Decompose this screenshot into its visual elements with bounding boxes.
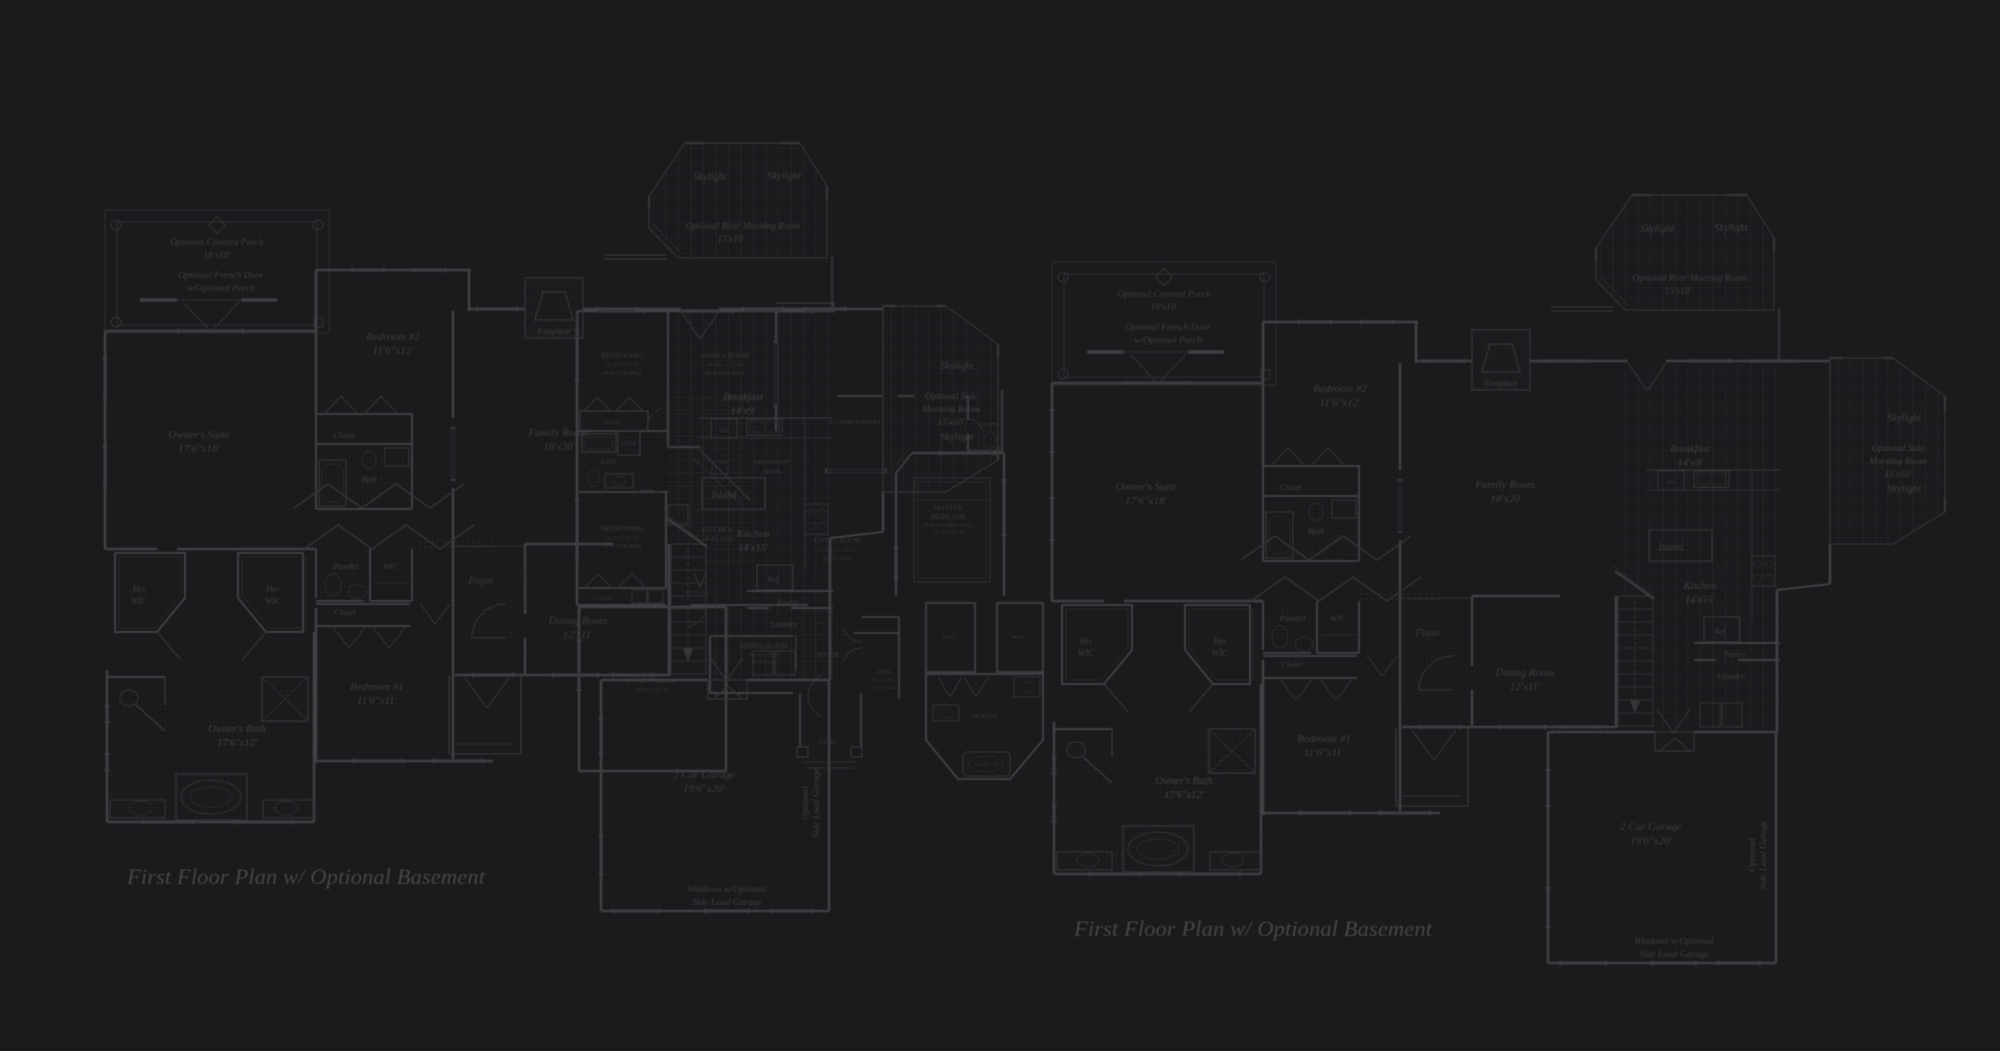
svg-text:11'-1" x 11'-2": 11'-1" x 11'-2" — [605, 536, 640, 542]
svg-text:Family Room: Family Room — [1474, 479, 1535, 491]
svg-text:Skylight: Skylight — [1640, 224, 1675, 235]
svg-text:W.I.C.: W.I.C. — [1012, 635, 1028, 641]
svg-text:w/Optional Porch: w/Optional Porch — [1134, 336, 1202, 346]
svg-text:Pantry: Pantry — [1723, 650, 1746, 659]
svg-text:LINEN: LINEN — [622, 442, 637, 447]
svg-text:15'x10': 15'x10' — [1884, 470, 1912, 480]
svg-text:12'x11': 12'x11' — [1510, 681, 1541, 693]
svg-text:MASTER: MASTER — [934, 504, 963, 512]
svg-text:WIC: WIC — [1212, 648, 1229, 658]
svg-text:Bath: Bath — [1308, 526, 1324, 536]
svg-text:Bedroom #1: Bedroom #1 — [1297, 733, 1351, 745]
svg-text:BEDROOM: BEDROOM — [930, 513, 966, 521]
svg-text:18'x20: 18'x20 — [1490, 493, 1520, 505]
svg-text:19'-8" x 20'-0": 19'-8" x 20'-0" — [634, 688, 670, 694]
svg-text:Closet: Closet — [1280, 482, 1302, 492]
svg-text:Optional Covered Porch: Optional Covered Porch — [1117, 290, 1210, 300]
svg-text:Windows w/Optional: Windows w/Optional — [1634, 937, 1714, 947]
svg-text:Skylight: Skylight — [1887, 484, 1922, 495]
svg-text:Island: Island — [1658, 542, 1685, 553]
svg-text:Optional: Optional — [1748, 838, 1758, 872]
svg-text:WIC: WIC — [1078, 648, 1095, 658]
svg-text:M.BATH: M.BATH — [973, 713, 998, 720]
svg-text:Skylight: Skylight — [1887, 413, 1922, 424]
svg-text:Morning Room: Morning Room — [1868, 457, 1927, 467]
svg-text:GARDEN TUB: GARDEN TUB — [974, 763, 999, 767]
svg-text:19'6"x20': 19'6"x20' — [1630, 835, 1672, 847]
svg-text:CLOSET: CLOSET — [603, 420, 624, 426]
svg-text:Bedroom #2: Bedroom #2 — [1313, 383, 1367, 395]
svg-text:11'6"x12': 11'6"x12' — [1320, 397, 1362, 409]
svg-text:2 Car Garage: 2 Car Garage — [1620, 821, 1682, 833]
svg-text:Her: Her — [1212, 636, 1227, 646]
svg-text:Fireplace: Fireplace — [1484, 378, 1518, 388]
svg-text:CLOSET: CLOSET — [594, 596, 615, 602]
svg-text:BATH: BATH — [600, 460, 616, 466]
svg-text:14'x9': 14'x9' — [1678, 458, 1704, 469]
svg-text:His: His — [1079, 636, 1093, 646]
svg-text:11'-5" x 13'-0": 11'-5" x 13'-0" — [605, 363, 640, 369]
svg-text:17'6"x18': 17'6"x18' — [1125, 495, 1167, 507]
svg-text:11'6"x11': 11'6"x11' — [1304, 747, 1345, 759]
svg-text:BEDROOM#3: BEDROOM#3 — [601, 352, 644, 360]
svg-text:Laundry: Laundry — [1716, 672, 1745, 681]
svg-text:COVERED PATIO: COVERED PATIO — [830, 419, 880, 426]
svg-text:BEDROOM#4: BEDROOM#4 — [601, 525, 644, 533]
svg-text:Ref.: Ref. — [1714, 627, 1728, 636]
svg-text:(9'-0/11'-0 BED CLG): (9'-0/11'-0 BED CLG) — [923, 522, 972, 529]
svg-text:DW: DW — [1665, 479, 1677, 486]
svg-text:DEN: DEN — [877, 669, 891, 676]
svg-text:First Floor Plan w/ Optional: First Floor Plan w/ Optional Basement — [1073, 916, 1433, 941]
svg-text:Powder: Powder — [1279, 613, 1307, 623]
svg-text:Owner's Suite: Owner's Suite — [1115, 481, 1176, 493]
svg-text:Skylight: Skylight — [1714, 223, 1749, 234]
svg-text:Optional Side: Optional Side — [1872, 444, 1925, 454]
svg-text:18'x10': 18'x10' — [1150, 303, 1178, 313]
svg-text:(9'-0 CLG): (9'-0 CLG) — [872, 684, 897, 691]
svg-text:15'x10': 15'x10' — [1664, 287, 1692, 297]
svg-text:Closet: Closet — [1281, 659, 1303, 669]
svg-text:Optional Rear Morning Room: Optional Rear Morning Room — [1633, 274, 1748, 284]
svg-text:W.I.C.: W.I.C. — [942, 635, 958, 641]
svg-text:14'x15': 14'x15' — [1685, 595, 1716, 606]
svg-text:Breakfast: Breakfast — [1670, 444, 1711, 455]
svg-text:Side Load Garage: Side Load Garage — [1639, 950, 1709, 960]
svg-text:17'6"x12': 17'6"x12' — [1164, 790, 1205, 801]
svg-text:13'-5 x 16'-5: 13'-5 x 16'-5 — [933, 530, 963, 536]
svg-text:Side Load Garage: Side Load Garage — [1759, 820, 1769, 890]
svg-text:10'-4 x 11'-2: 10'-4 x 11'-2 — [870, 678, 898, 684]
svg-text:WIC: WIC — [1330, 613, 1346, 623]
svg-text:Dining Room: Dining Room — [1495, 667, 1555, 679]
svg-text:Kitchen: Kitchen — [1683, 581, 1717, 592]
svg-text:Owner's Bath: Owner's Bath — [1155, 776, 1212, 787]
svg-text:(9'-0 CEILING): (9'-0 CEILING) — [603, 370, 642, 377]
svg-text:Optional French Door: Optional French Door — [1125, 323, 1211, 333]
